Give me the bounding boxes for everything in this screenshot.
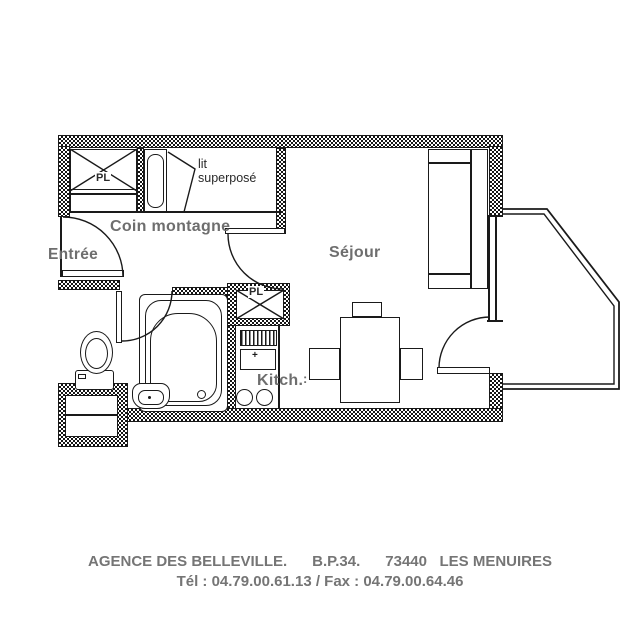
agency-footer: AGENCE DES BELLEVILLE. B.P.34. 73440 LES… (0, 552, 640, 592)
burner-right (256, 389, 273, 406)
room-label-coin-montagne: Coin montagne (110, 218, 230, 236)
kitchen-dots: : (303, 371, 308, 386)
closet-pl-montagne (70, 149, 137, 191)
agency-phone-line: Tél : 04.79.00.61.13 / Fax : 04.79.00.64… (0, 572, 640, 592)
closet-shelf-line (71, 193, 136, 195)
sejour-door-leaf (225, 228, 285, 234)
room-label-entree: Entrée (48, 246, 98, 264)
bunk-bed-label-line1: lit (198, 158, 256, 172)
agency-address-line: AGENCE DES BELLEVILLE. B.P.34. 73440 LES… (0, 552, 640, 572)
wall-left-upper (58, 146, 70, 217)
bunk-bed-mattress (147, 154, 164, 208)
balcony-door-arc (439, 317, 490, 368)
floor-plan: + Entrée Coin montagne Séjour Kitch. : P… (0, 0, 640, 640)
balcony-outline-outer (503, 209, 619, 389)
bunk-bed-label: lit superposé (198, 158, 256, 185)
dining-table (340, 317, 400, 403)
sofa-armrest-bottom-line (429, 273, 471, 275)
balcony-door-leaf (437, 367, 490, 374)
front-door-leaf (62, 270, 124, 277)
sofa (428, 149, 488, 289)
closet-label-kitchen: PL (248, 286, 264, 298)
window-line-inner (495, 217, 497, 322)
burner-left (236, 389, 253, 406)
closet-label-montagne: PL (95, 172, 111, 184)
kitchen-edge-line (278, 326, 280, 408)
bathtub-drain (197, 390, 206, 399)
balcony-outline-inner (503, 214, 614, 384)
window-line-outer (488, 217, 490, 322)
plan-linework (0, 0, 640, 640)
toilet-bowl-inner (85, 338, 108, 369)
bathroom-door-leaf (116, 291, 122, 343)
entry-cabinet (65, 395, 118, 437)
wall-closet-stub (137, 148, 144, 212)
room-label-sejour: Séjour (329, 244, 381, 262)
bunk-bed-label-line2: superposé (198, 172, 256, 186)
stove-mark: + (252, 351, 258, 361)
wall-entree-bathroom (58, 280, 120, 290)
wall-right-upper (489, 146, 503, 217)
sink-basin (138, 390, 164, 405)
toilet-handle (78, 374, 86, 379)
wall-top (58, 135, 503, 148)
entry-cabinet-divider (66, 414, 117, 416)
window-tick-bottom (487, 320, 503, 322)
room-label-kitchen: Kitch. (257, 372, 303, 390)
chair-left (309, 348, 340, 380)
kitchen-stove (240, 349, 276, 370)
wall-montagne-sejour (276, 148, 286, 234)
sofa-backrest-line (470, 150, 472, 288)
bunk-bed-leader-line (168, 152, 195, 212)
window-tick-top (487, 215, 503, 217)
sejour-door-arc (228, 234, 283, 289)
kitchen-rack (240, 330, 277, 346)
sofa-armrest-top-line (429, 162, 471, 164)
chair-right (400, 348, 423, 380)
sink-drain (148, 396, 151, 399)
chair-top (352, 302, 382, 317)
